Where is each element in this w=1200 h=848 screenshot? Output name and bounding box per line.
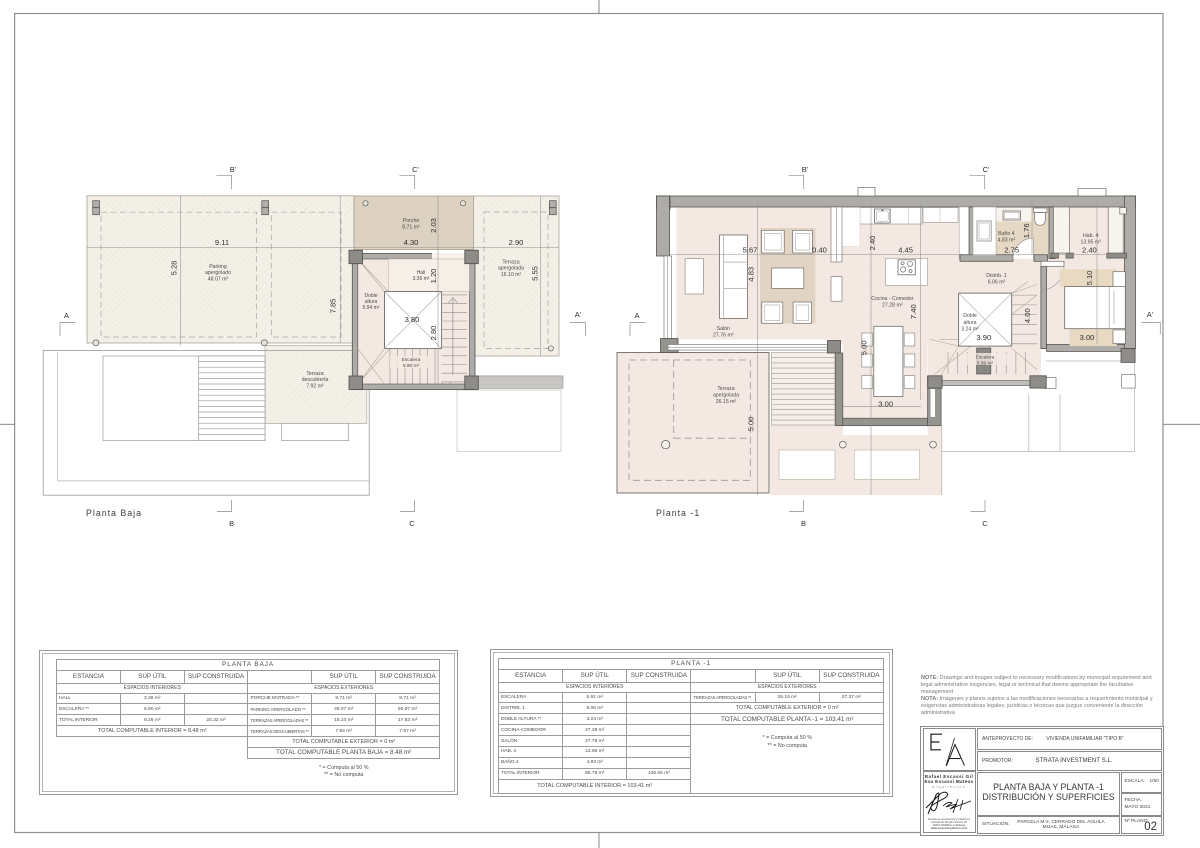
svg-text:Planta -1: Planta -1 xyxy=(656,508,700,518)
svg-text:4.30: 4.30 xyxy=(404,238,419,247)
svg-text:3.24 m²: 3.24 m² xyxy=(961,327,979,333)
svg-text:3.36 m²: 3.36 m² xyxy=(413,276,430,282)
svg-text:2.80: 2.80 xyxy=(429,326,438,341)
svg-text:C': C' xyxy=(412,165,419,174)
svg-text:16.10 m²: 16.10 m² xyxy=(501,272,522,278)
svg-text:4.83: 4.83 xyxy=(746,267,755,282)
svg-text:13.95 m²: 13.95 m² xyxy=(1080,240,1101,246)
svg-text:6.06 m²: 6.06 m² xyxy=(988,280,1006,286)
svg-text:2.40: 2.40 xyxy=(868,236,877,251)
svg-text:5.28: 5.28 xyxy=(170,261,179,276)
svg-text:4.45: 4.45 xyxy=(898,246,913,255)
svg-text:altura: altura xyxy=(964,320,977,326)
svg-text:2.40: 2.40 xyxy=(1082,246,1097,255)
svg-text:0.40: 0.40 xyxy=(812,246,827,255)
svg-text:C': C' xyxy=(983,165,990,174)
svg-text:Salón: Salón xyxy=(717,326,730,332)
svg-text:B: B xyxy=(801,519,806,528)
svg-text:Escalera: Escalera xyxy=(402,357,421,363)
svg-text:5.00: 5.00 xyxy=(860,340,869,355)
svg-text:5.55: 5.55 xyxy=(531,266,540,281)
svg-text:7.85: 7.85 xyxy=(329,299,338,314)
svg-text:Distrib. 1: Distrib. 1 xyxy=(986,273,1007,279)
svg-text:4.00: 4.00 xyxy=(1023,308,1032,323)
svg-text:apergolado: apergolado xyxy=(205,270,231,276)
svg-text:5.00: 5.00 xyxy=(747,417,756,432)
svg-text:Cocina - Comedor: Cocina - Comedor xyxy=(871,296,913,302)
svg-text:26.15 m²: 26.15 m² xyxy=(716,399,737,405)
svg-text:Terraza: Terraza xyxy=(717,386,734,392)
svg-text:A': A' xyxy=(575,310,582,319)
svg-text:8.71 m²: 8.71 m² xyxy=(402,225,420,231)
svg-text:C: C xyxy=(409,519,415,528)
svg-text:Hab. 4: Hab. 4 xyxy=(1083,233,1098,239)
svg-text:B: B xyxy=(229,519,234,528)
svg-text:2.03: 2.03 xyxy=(429,218,438,233)
svg-text:Escalera: Escalera xyxy=(976,355,995,361)
svg-text:A': A' xyxy=(1147,310,1154,319)
svg-text:Planta Baja: Planta Baja xyxy=(86,508,142,518)
svg-text:5.94 m²: 5.94 m² xyxy=(363,305,380,311)
svg-text:A: A xyxy=(64,311,69,320)
svg-text:5.99 m²: 5.99 m² xyxy=(977,360,994,366)
svg-text:2.90: 2.90 xyxy=(509,238,524,247)
svg-text:5.67: 5.67 xyxy=(743,246,758,255)
svg-text:apergolada: apergolada xyxy=(498,266,524,272)
svg-text:27.76 m²: 27.76 m² xyxy=(713,333,734,339)
svg-text:4.83 m²: 4.83 m² xyxy=(998,238,1016,244)
svg-text:7.40: 7.40 xyxy=(909,304,918,319)
svg-text:C: C xyxy=(982,519,988,528)
svg-text:5.90 m²: 5.90 m² xyxy=(403,363,420,369)
svg-text:3.80: 3.80 xyxy=(405,315,420,324)
svg-text:apergolada: apergolada xyxy=(713,393,739,399)
svg-text:2.75: 2.75 xyxy=(1004,246,1019,255)
svg-text:A: A xyxy=(634,311,639,320)
svg-text:9.11: 9.11 xyxy=(215,238,229,247)
svg-text:48.07 m²: 48.07 m² xyxy=(208,277,229,283)
svg-text:27.28 m²: 27.28 m² xyxy=(882,303,903,309)
svg-text:3.00: 3.00 xyxy=(1080,333,1095,342)
svg-text:1.76: 1.76 xyxy=(1022,223,1031,238)
svg-text:Porche: Porche xyxy=(403,218,420,224)
svg-text:7.92 m²: 7.92 m² xyxy=(306,384,324,390)
svg-text:Baño 4: Baño 4 xyxy=(998,231,1015,237)
svg-text:B': B' xyxy=(802,165,809,174)
svg-text:5.10: 5.10 xyxy=(1085,271,1094,286)
svg-text:descubierta: descubierta xyxy=(302,377,329,383)
svg-text:1.20: 1.20 xyxy=(429,269,438,284)
svg-text:3.00: 3.00 xyxy=(878,400,893,409)
svg-text:3.90: 3.90 xyxy=(976,333,991,342)
svg-text:B': B' xyxy=(230,165,237,174)
svg-text:Doble: Doble xyxy=(963,313,977,319)
